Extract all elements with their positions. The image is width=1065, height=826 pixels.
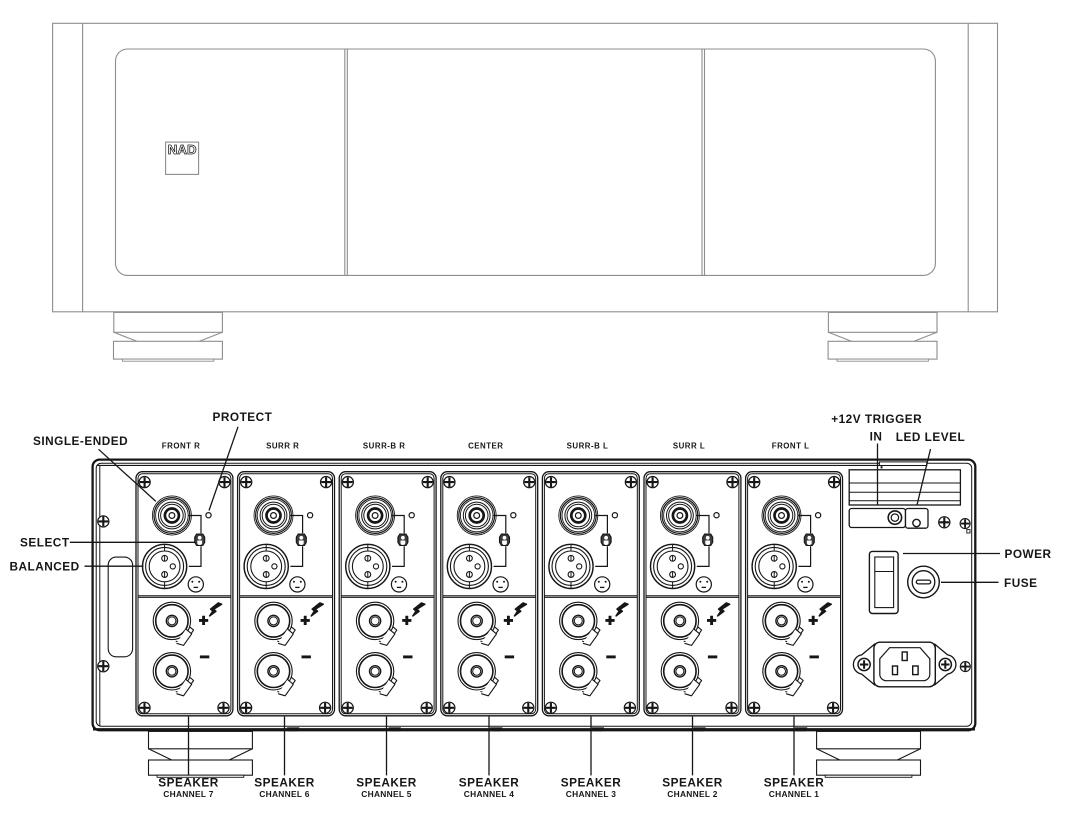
- svg-text:CHANNEL 5: CHANNEL 5: [361, 789, 412, 799]
- svg-text:SURR-B R: SURR-B R: [363, 441, 406, 450]
- svg-text:SINGLE-ENDED: SINGLE-ENDED: [33, 434, 128, 448]
- svg-text:FUSE: FUSE: [1004, 576, 1037, 590]
- svg-text:SPEAKER: SPEAKER: [356, 776, 417, 790]
- svg-text:+12V TRIGGER: +12V TRIGGER: [831, 412, 922, 426]
- svg-text:IN: IN: [870, 429, 883, 443]
- svg-text:SELECT: SELECT: [20, 536, 70, 550]
- svg-text:PROTECT: PROTECT: [213, 410, 273, 424]
- svg-text:CHANNEL 1: CHANNEL 1: [769, 789, 820, 799]
- svg-text:CHANNEL 2: CHANNEL 2: [667, 789, 718, 799]
- svg-text:NAD: NAD: [168, 142, 197, 157]
- svg-text:SURR R: SURR R: [266, 441, 299, 450]
- svg-text:SURR L: SURR L: [673, 441, 705, 450]
- svg-text:CENTER: CENTER: [468, 441, 503, 450]
- svg-text:SPEAKER: SPEAKER: [764, 776, 825, 790]
- svg-text:SPEAKER: SPEAKER: [254, 776, 315, 790]
- svg-text:CHANNEL 3: CHANNEL 3: [566, 789, 617, 799]
- svg-text:FRONT R: FRONT R: [162, 441, 201, 450]
- svg-text:FRONT L: FRONT L: [772, 441, 810, 450]
- svg-text:CHANNEL 7: CHANNEL 7: [163, 789, 214, 799]
- svg-text:LED LEVEL: LED LEVEL: [896, 430, 965, 444]
- svg-text:SURR-B L: SURR-B L: [567, 441, 609, 450]
- svg-text:CHANNEL 6: CHANNEL 6: [259, 789, 310, 799]
- svg-text:BALANCED: BALANCED: [10, 559, 80, 573]
- svg-text:SPEAKER: SPEAKER: [158, 776, 219, 790]
- svg-text:SPEAKER: SPEAKER: [662, 776, 723, 790]
- svg-text:SPEAKER: SPEAKER: [459, 776, 520, 790]
- svg-text:CHANNEL 4: CHANNEL 4: [464, 789, 515, 799]
- svg-text:SPEAKER: SPEAKER: [561, 776, 622, 790]
- svg-text:POWER: POWER: [1005, 547, 1052, 561]
